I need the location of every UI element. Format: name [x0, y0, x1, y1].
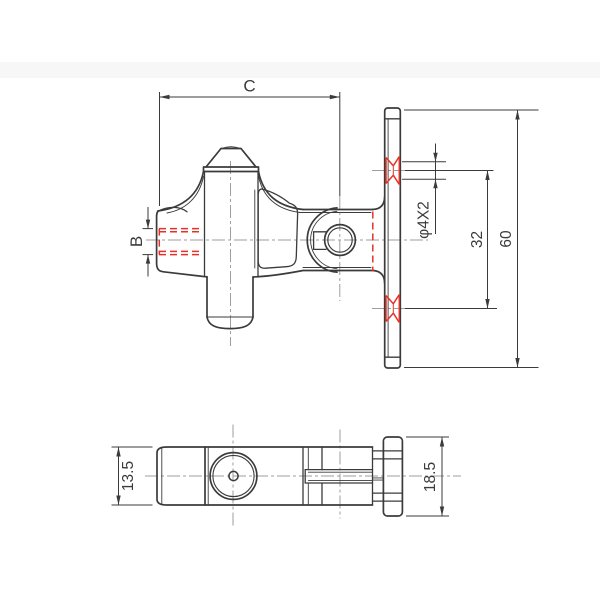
- watermark-band: [0, 62, 600, 78]
- front-thread-hole-highlight: [159, 229, 203, 255]
- dim-label-c: C: [243, 77, 255, 96]
- technical-drawing: C B φ4X2 32: [0, 0, 600, 600]
- dim-label-18-5: 18.5: [422, 462, 439, 492]
- mounting-plate: [385, 108, 401, 368]
- front-view: C B φ4X2 32: [127, 77, 539, 369]
- dimension-lug-bore: B: [127, 207, 153, 277]
- drawing-canvas: C B φ4X2 32: [0, 0, 600, 600]
- dim-label-13-5: 13.5: [120, 461, 137, 491]
- dim-label-b: B: [127, 236, 146, 247]
- dim-label-60: 60: [498, 230, 515, 248]
- top-view: 13.5 18.5: [112, 425, 462, 529]
- dim-label-hole: φ4X2: [416, 201, 433, 239]
- front-part-outline: [157, 108, 401, 368]
- dim-label-32: 32: [469, 231, 486, 248]
- dimension-overall-width: C: [160, 77, 340, 207]
- dimension-plate-holes: φ4X2: [402, 144, 446, 239]
